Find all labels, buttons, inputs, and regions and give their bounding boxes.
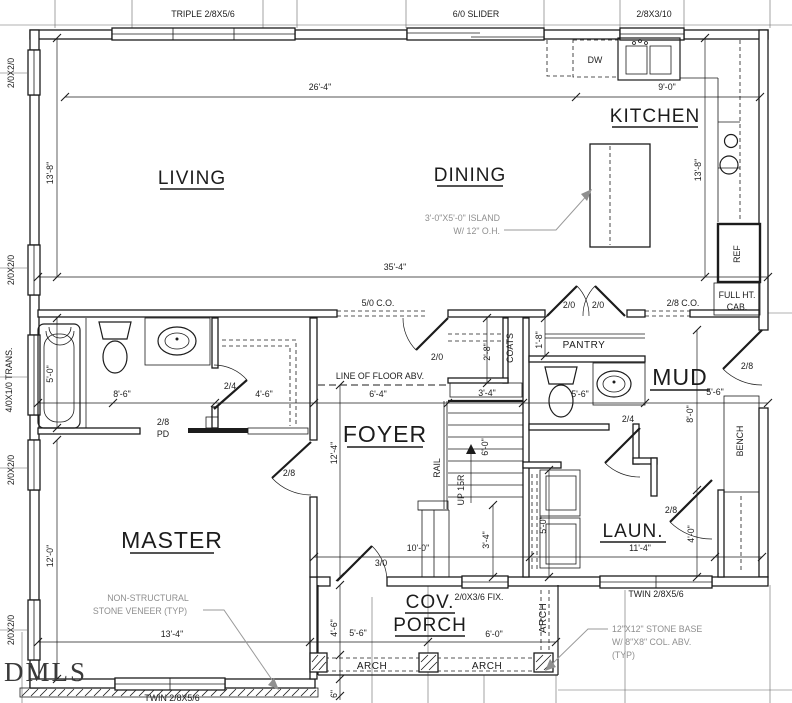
window-label-slider: 6/0 SLIDER bbox=[453, 9, 499, 19]
room-label-laundry: LAUN. bbox=[603, 521, 664, 542]
window-label-casement-4: 2/0X2/0 bbox=[6, 615, 16, 645]
dim-5-6-porch: 5'-6" bbox=[349, 628, 367, 638]
arch-label-side: ARCH bbox=[538, 603, 549, 633]
up-15r-label: UP 15R bbox=[456, 475, 466, 506]
pantry-door-label-right: 2/0 bbox=[592, 300, 604, 310]
dim-11-4: 11'-4" bbox=[629, 543, 651, 553]
dishwasher-label: DW bbox=[588, 55, 603, 65]
dim-9-0: 9'-0" bbox=[658, 82, 676, 92]
dim-5-0-tub: 5'-0" bbox=[45, 365, 55, 383]
pocket-door-size: 2/8 bbox=[157, 417, 169, 427]
door-label-2-4-hall: 2/4 bbox=[622, 414, 634, 424]
dim-4-6-closet: 4'-6" bbox=[255, 389, 273, 399]
dim-6-0-porch: 6'-0" bbox=[485, 629, 503, 639]
island-note-line2: W/ 12" O.H. bbox=[453, 226, 500, 236]
note-floor-above: LINE OF FLOOR ABV. bbox=[336, 371, 424, 381]
stone-base-note-1: 12"X12" STONE BASE bbox=[612, 624, 702, 634]
room-label-master: MASTER bbox=[121, 527, 223, 553]
dim-12-0: 12'-0" bbox=[45, 545, 55, 567]
dim-1-8: 1'-8" bbox=[534, 331, 544, 349]
arch-label-right: ARCH bbox=[472, 661, 502, 672]
room-label-porch-2: PORCH bbox=[393, 615, 467, 636]
dim-8-0: 8'-0" bbox=[685, 405, 695, 423]
door-label-2-8-laundry: 2/8 bbox=[665, 505, 677, 515]
door-label-2-8-mud: 2/8 bbox=[741, 361, 753, 371]
dim-13-4: 13'-4" bbox=[161, 629, 183, 639]
full-height-cabinet-label-1: FULL HT. bbox=[719, 290, 756, 300]
refrigerator-label: REF bbox=[732, 245, 742, 263]
room-label-porch-1: COV. bbox=[406, 592, 455, 613]
dim-13-8-left: 13'-8" bbox=[45, 162, 55, 184]
window-label-casement-2: 2/0X2/0 bbox=[6, 255, 16, 285]
dim-3-4-stair: 3'-4" bbox=[478, 388, 496, 398]
floor-plan-sheet: TRIPLE 2/8X5/6 6/0 SLIDER 2/8X3/10 26'-4… bbox=[0, 0, 792, 703]
dim-10-0: 10'-0" bbox=[407, 543, 429, 553]
door-label-2-0-coats: 2/0 bbox=[431, 352, 443, 362]
full-height-cabinet-label-2: CAB. bbox=[727, 302, 748, 312]
room-label-foyer: FOYER bbox=[343, 421, 427, 447]
bench-label: BENCH bbox=[735, 426, 745, 457]
window-label-casement-3: 2/0X2/0 bbox=[6, 455, 16, 485]
stone-veneer-note-1: NON-STRUCTURAL bbox=[107, 593, 189, 603]
cased-opening-5-0: 5/0 C.O. bbox=[362, 298, 395, 308]
room-label-kitchen: KITCHEN bbox=[610, 106, 700, 127]
dim-5-0-laundry: 5'-0" bbox=[538, 516, 548, 534]
dim-2-8: 2'-8" bbox=[482, 343, 492, 361]
dim-8-6: 8'-6" bbox=[113, 389, 131, 399]
window-label-single: 2/8X3/10 bbox=[636, 9, 671, 19]
cased-opening-2-8: 2/8 C.O. bbox=[667, 298, 700, 308]
watermark-text: DMLS bbox=[4, 657, 87, 687]
window-label-casement-1: 2/0X2/0 bbox=[6, 58, 16, 88]
room-label-coats: COATS bbox=[505, 333, 515, 363]
dim-5-6-powder: 5'-6" bbox=[571, 389, 589, 399]
kitchen-island bbox=[590, 144, 650, 247]
pantry-door-label-left: 2/0 bbox=[563, 300, 575, 310]
stone-base-note-3: (TYP) bbox=[612, 650, 635, 660]
window-label-transom: 4/0X1/0 TRANS. bbox=[4, 348, 14, 413]
dim-5-6-mud: 5'-6" bbox=[706, 387, 724, 397]
pocket-door-label: PD bbox=[157, 429, 169, 439]
window-label-twin-laundry: TWIN 2/8X5/6 bbox=[628, 589, 683, 599]
pocket-door-panel bbox=[188, 428, 248, 433]
arch-label-left: ARCH bbox=[357, 661, 387, 672]
island-note-line1: 3'-0"X5'-0" ISLAND bbox=[425, 213, 500, 223]
door-label-2-8-master: 2/8 bbox=[283, 468, 295, 478]
room-label-mud: MUD bbox=[652, 364, 707, 390]
dim-3-4-lower: 3'-4" bbox=[481, 531, 491, 549]
window-label-triple: TRIPLE 2/8X5/6 bbox=[171, 9, 235, 19]
stone-veneer-note-2: STONE VENEER (TYP) bbox=[93, 606, 187, 616]
dim-35-4: 35'-4" bbox=[384, 262, 406, 272]
dim-6-4: 6'-4" bbox=[369, 389, 387, 399]
dim-6-0-stair: 6'-0" bbox=[480, 438, 490, 456]
dim-4-0: 4'-0" bbox=[686, 525, 696, 543]
rail-label: RAIL bbox=[432, 458, 442, 478]
window-label-twin-master: TWIN 2/8X5/6 bbox=[144, 693, 199, 703]
dim-4-6-porch: 4'-6" bbox=[329, 619, 339, 637]
dim-26-4: 26'-4" bbox=[309, 82, 331, 92]
room-label-dining: DINING bbox=[434, 165, 507, 186]
floor-plan-drawing: TRIPLE 2/8X5/6 6/0 SLIDER 2/8X3/10 26'-4… bbox=[0, 0, 792, 703]
dim-6in: 6" bbox=[329, 690, 339, 698]
dim-12-4: 12'-4" bbox=[329, 442, 339, 464]
window-label-fixed: 2/0X3/6 FIX. bbox=[455, 592, 504, 602]
door-label-2-4-bath: 2/4 bbox=[224, 381, 236, 391]
room-label-living: LIVING bbox=[158, 168, 226, 189]
dim-13-8-right: 13'-8" bbox=[693, 159, 703, 181]
room-label-pantry: PANTRY bbox=[563, 340, 606, 351]
stone-base-note-2: W/ 8"X8" COL. ABV. bbox=[612, 637, 691, 647]
door-label-3-0-front: 3/0 bbox=[375, 558, 387, 568]
